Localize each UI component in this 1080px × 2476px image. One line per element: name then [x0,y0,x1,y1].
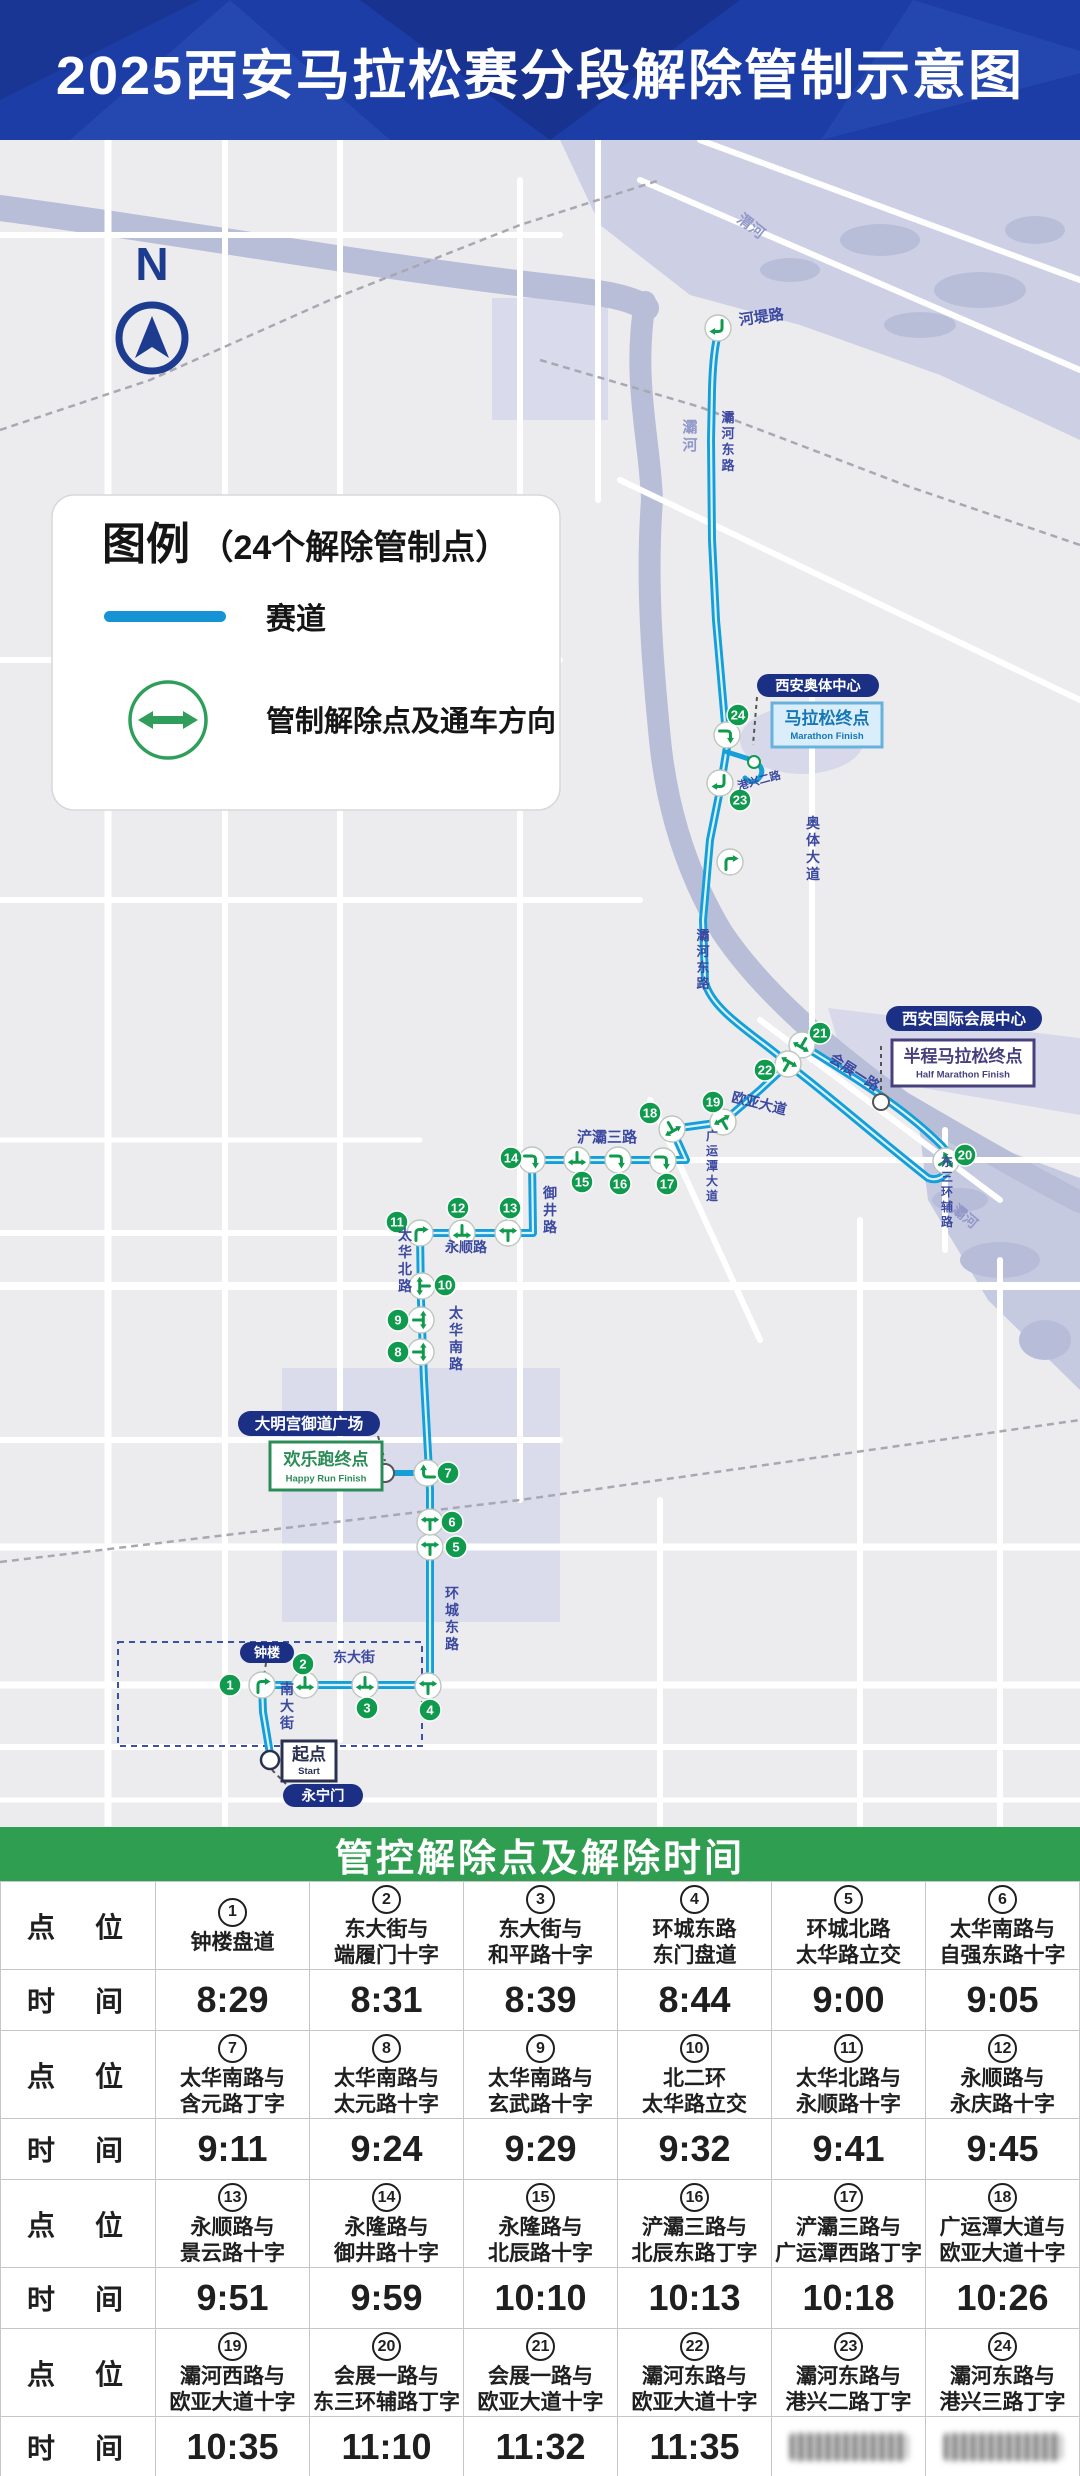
row-label-time: 时 间 [1,2417,156,2476]
release-timetable: 点 位1钟楼盘道2东大街与 端履门十字3东大街与 和平路十字4环城东路 东门盘道… [0,1881,1080,2476]
release-time: 9:00 [772,1970,926,2031]
compass-n-label: N [135,238,168,290]
point-name: 广运潭大道与 欧亚大道十字 [926,2215,1079,2265]
release-time-value: 9:29 [464,2128,617,2170]
road-label: 东大街 [333,1649,375,1665]
point-number-badge: 19 [218,2332,247,2361]
point-number-badge: 10 [680,2034,709,2063]
point-cell-6: 6太华南路与 自强东路十字 [926,1882,1080,1970]
release-time-blurred [926,2417,1080,2476]
blurred-time-smear [790,2433,908,2461]
road-label: 太华南路 [449,1305,464,1372]
road-label: 广运潭大道 [706,1128,718,1203]
land-patch [1019,1320,1071,1360]
release-time: 8:39 [464,1970,618,2031]
release-time: 9:11 [156,2119,310,2180]
point-name: 太华南路与 含元路丁字 [156,2066,309,2116]
point-row-4: 点 位19灞河西路与 欧亚大道十字20会展一路与 东三环辅路丁字21会展一路与 … [1,2329,1080,2417]
point-cell-12: 12永顺路与 永庆路十字 [926,2031,1080,2119]
title-banner: 2025西安马拉松赛分段解除管制示意图 [0,0,1080,140]
release-time-value: 9:11 [156,2128,309,2170]
point-number-badge: 11 [834,2034,863,2063]
row-label-point: 点 位 [1,1882,156,1970]
point-name: 灞河东路与 欧亚大道十字 [618,2364,771,2414]
land-patch [840,224,920,256]
release-time: 10:18 [772,2268,926,2329]
poi-pill-label: 钟楼 [254,1645,280,1660]
release-time-value: 9:51 [156,2277,309,2319]
checkpoint-number: 13 [503,1201,517,1216]
row-label-time: 时 间 [1,2268,156,2329]
point-number-badge: 14 [372,2183,401,2212]
land-patch [934,272,1026,308]
point-number-badge: 22 [680,2332,709,2361]
point-number-badge: 2 [372,1885,401,1914]
land-patch [760,258,820,282]
release-time-value: 11:35 [618,2426,771,2468]
release-time: 11:10 [310,2417,464,2476]
release-point-icon [705,315,731,341]
land-patch [492,298,608,420]
checkpoint-number: 16 [613,1177,627,1192]
checkpoint-number: 9 [394,1313,401,1328]
checkpoint-number: 8 [394,1345,401,1360]
poster: 2025西安马拉松赛分段解除管制示意图 12345678910111213141… [0,0,1080,2476]
point-number-badge: 12 [988,2034,1017,2063]
point-number-badge: 8 [372,2034,401,2063]
release-time-value: 10:35 [156,2426,309,2468]
release-time: 9:45 [926,2119,1080,2180]
point-name: 会展一路与 东三环辅路丁字 [310,2364,463,2414]
checkpoint-number: 20 [958,1148,972,1163]
point-cell-22: 22灞河东路与 欧亚大道十字 [618,2329,772,2417]
release-time: 9:32 [618,2119,772,2180]
point-name: 太华北路与 永顺路十字 [772,2066,925,2116]
point-cell-4: 4环城东路 东门盘道 [618,1882,772,1970]
point-name: 太华南路与 玄武路十字 [464,2066,617,2116]
finish-box-subtitle: Start [298,1766,320,1777]
point-cell-23: 23灞河东路与 港兴二路丁字 [772,2329,926,2417]
checkpoint-number: 18 [643,1106,657,1121]
point-number-badge: 3 [526,1885,555,1914]
point-cell-20: 20会展一路与 东三环辅路丁字 [310,2329,464,2417]
release-time-value: 10:26 [926,2277,1079,2319]
checkpoint-number: 1 [226,1678,233,1693]
point-number-badge: 23 [834,2332,863,2361]
checkpoint-number: 10 [438,1278,452,1293]
checkpoint-number: 17 [660,1177,674,1192]
point-cell-2: 2东大街与 端履门十字 [310,1882,464,1970]
release-time: 8:44 [618,1970,772,2031]
table-title: 管控解除点及解除时间 [0,1827,1080,1881]
road-label: 灞河东路 [696,928,710,991]
row-label-point: 点 位 [1,2329,156,2417]
checkpoint-number: 6 [448,1515,455,1530]
release-time-value: 9:59 [310,2277,463,2319]
point-number-badge: 5 [834,1885,863,1914]
point-cell-10: 10北二环 太华路立交 [618,2031,772,2119]
point-number-badge: 6 [988,1885,1017,1914]
road-label: 太华北路 [398,1227,413,1294]
point-cell-7: 7太华南路与 含元路丁字 [156,2031,310,2119]
route-map-svg: 123456789101112131415161718192021222324河… [0,140,1080,1827]
point-row-3: 点 位13永顺路与 景云路十字14永隆路与 御井路十字15永隆路与 北辰路十字1… [1,2180,1080,2268]
connector-circle [261,1751,279,1769]
point-number-badge: 17 [834,2183,863,2212]
point-number-badge: 13 [218,2183,247,2212]
poi-pill-label: 永宁门 [301,1787,345,1805]
point-cell-13: 13永顺路与 景云路十字 [156,2180,310,2268]
point-cell-9: 9太华南路与 玄武路十字 [464,2031,618,2119]
release-point-icon [414,1460,440,1486]
release-time: 10:13 [618,2268,772,2329]
point-number-badge: 15 [526,2183,555,2212]
release-time-value: 8:44 [618,1979,771,2021]
time-row-2: 时 间9:119:249:299:329:419:45 [1,2119,1080,2180]
release-time: 11:35 [618,2417,772,2476]
point-name: 东大街与 端履门十字 [310,1917,463,1967]
row-label-point: 点 位 [1,2031,156,2119]
point-number-badge: 9 [526,2034,555,2063]
release-time: 9:29 [464,2119,618,2180]
release-time: 9:51 [156,2268,310,2329]
point-name: 环城北路 太华路立交 [772,1917,925,1967]
release-point-icon [650,1148,676,1174]
checkpoint-number: 15 [575,1175,589,1190]
point-number-badge: 20 [372,2332,401,2361]
point-number-badge: 16 [680,2183,709,2212]
road-label: 御井路 [542,1185,558,1235]
point-cell-8: 8太华南路与 太元路十字 [310,2031,464,2119]
release-time-value: 10:13 [618,2277,771,2319]
release-time: 9:05 [926,1970,1080,2031]
release-time: 10:26 [926,2268,1080,2329]
release-point-icon [605,1147,631,1173]
point-cell-24: 24灞河东路与 港兴三路丁字 [926,2329,1080,2417]
road-label: 东三环辅路 [941,1154,954,1229]
road-label: 浐灞三路 [577,1128,638,1146]
release-time: 8:31 [310,1970,464,2031]
release-time-value: 9:24 [310,2128,463,2170]
checkpoint-number: 2 [299,1657,306,1672]
point-name: 太华南路与 自强东路十字 [926,1917,1079,1967]
checkpoint-number: 23 [733,793,747,808]
poi-pill-label: 大明宫御道广场 [255,1414,364,1433]
time-row-3: 时 间9:519:5910:1010:1310:1810:26 [1,2268,1080,2329]
road-label: 灞河东路 [721,410,735,473]
release-time-value: 8:39 [464,1979,617,2021]
point-name: 灞河西路与 欧亚大道十字 [156,2364,309,2414]
point-name: 钟楼盘道 [156,1930,309,1955]
checkpoint-number: 14 [504,1151,519,1166]
release-time: 9:41 [772,2119,926,2180]
release-time-value: 9:32 [618,2128,771,2170]
point-cell-1: 1钟楼盘道 [156,1882,310,1970]
point-cell-11: 11太华北路与 永顺路十字 [772,2031,926,2119]
point-number-badge: 4 [680,1885,709,1914]
finish-box-title: 马拉松终点 [785,708,870,728]
point-name: 环城东路 东门盘道 [618,1917,771,1967]
row-label-time: 时 间 [1,1970,156,2031]
release-time-value: 8:31 [310,1979,463,2021]
point-cell-21: 21会展一路与 欧亚大道十字 [464,2329,618,2417]
poi-pill-label: 西安国际会展中心 [902,1009,1027,1028]
legend-track-swatch [104,611,226,622]
land-patch [1005,216,1065,244]
page-title: 2025西安马拉松赛分段解除管制示意图 [0,0,1080,140]
release-point-icon [717,849,743,875]
point-name: 永顺路与 永庆路十字 [926,2066,1079,2116]
checkpoint-number: 22 [758,1063,772,1078]
point-cell-15: 15永隆路与 北辰路十字 [464,2180,618,2268]
point-row-2: 点 位7太华南路与 含元路丁字8太华南路与 太元路十字9太华南路与 玄武路十字1… [1,2031,1080,2119]
release-time-value: 9:45 [926,2128,1079,2170]
point-cell-14: 14永隆路与 御井路十字 [310,2180,464,2268]
release-time-value: 11:32 [464,2426,617,2468]
connector-circle [748,756,760,768]
finish-box-subtitle: Happy Run Finish [286,1473,367,1484]
point-name: 北二环 太华路立交 [618,2066,771,2116]
release-time-value: 9:00 [772,1979,925,2021]
checkpoint-number: 3 [363,1701,370,1716]
point-number-badge: 18 [988,2183,1017,2212]
road-label: 奥体大道 [806,815,821,882]
checkpoint-number: 5 [452,1540,459,1555]
legend-track-label: 赛道 [266,602,326,636]
point-number-badge: 7 [218,2034,247,2063]
checkpoint-number: 4 [426,1703,434,1718]
point-name: 灞河东路与 港兴三路丁字 [926,2364,1079,2414]
point-cell-3: 3东大街与 和平路十字 [464,1882,618,1970]
point-cell-17: 17浐灞三路与 广运潭西路丁字 [772,2180,926,2268]
point-name: 太华南路与 太元路十字 [310,2066,463,2116]
release-time-value: 10:10 [464,2277,617,2319]
land-patch [884,312,956,338]
point-name: 东大街与 和平路十字 [464,1917,617,1967]
release-point-icon [519,1147,545,1173]
release-time: 9:59 [310,2268,464,2329]
point-number-badge: 21 [526,2332,555,2361]
connector-circle [873,1094,889,1110]
legend-release-label: 管制解除点及通车方向 [266,704,556,738]
release-point-icon [249,1672,275,1698]
checkpoint-number: 19 [706,1095,720,1110]
point-name: 会展一路与 欧亚大道十字 [464,2364,617,2414]
release-time: 8:29 [156,1970,310,2031]
checkpoint-number: 7 [444,1466,451,1481]
release-time: 10:10 [464,2268,618,2329]
point-name: 永隆路与 御井路十字 [310,2215,463,2265]
release-time-value: 9:05 [926,1979,1079,2021]
release-time-value: 10:18 [772,2277,925,2319]
point-name: 永顺路与 景云路十字 [156,2215,309,2265]
point-cell-19: 19灞河西路与 欧亚大道十字 [156,2329,310,2417]
time-row-4: 时 间10:3511:1011:3211:35 [1,2417,1080,2476]
route-map: 123456789101112131415161718192021222324河… [0,140,1080,1827]
checkpoint-number: 24 [731,708,746,723]
road-label: 环城东路 [445,1585,460,1652]
poi-pill-label: 西安奥体中心 [775,677,861,695]
release-time: 10:35 [156,2417,310,2476]
point-cell-5: 5环城北路 太华路立交 [772,1882,926,1970]
release-time-value: 9:41 [772,2128,925,2170]
road-label: 南大街 [279,1681,294,1731]
time-row-1: 时 间8:298:318:398:449:009:05 [1,1970,1080,2031]
release-time-value: 8:29 [156,1979,309,2021]
release-time-blurred [772,2417,926,2476]
finish-box-subtitle: Marathon Finish [790,731,864,742]
release-time-value: 11:10 [310,2426,463,2468]
point-cell-16: 16浐灞三路与 北辰东路丁字 [618,2180,772,2268]
point-name: 永隆路与 北辰路十字 [464,2215,617,2265]
finish-box-title: 起点 [291,1744,326,1764]
point-number-badge: 24 [988,2332,1017,2361]
point-row-1: 点 位1钟楼盘道2东大街与 端履门十字3东大街与 和平路十字4环城东路 东门盘道… [1,1882,1080,1970]
row-label-point: 点 位 [1,2180,156,2268]
checkpoint-number: 21 [813,1026,827,1041]
row-label-time: 时 间 [1,2119,156,2180]
point-name: 灞河东路与 港兴二路丁字 [772,2364,925,2414]
checkpoint-number: 12 [451,1201,465,1216]
point-cell-18: 18广运潭大道与 欧亚大道十字 [926,2180,1080,2268]
release-time: 11:32 [464,2417,618,2476]
road-label: 永顺路 [444,1239,488,1255]
finish-box-subtitle: Half Marathon Finish [916,1070,1010,1081]
blurred-time-smear [944,2433,1062,2461]
point-name: 浐灞三路与 广运潭西路丁字 [772,2215,925,2265]
point-number-badge: 1 [218,1898,247,1927]
finish-box-title: 欢乐跑终点 [283,1449,369,1469]
release-time: 9:24 [310,2119,464,2180]
finish-box-title: 半程马拉松终点 [904,1046,1023,1066]
release-point-icon [707,770,733,796]
point-name: 浐灞三路与 北辰东路丁字 [618,2215,771,2265]
